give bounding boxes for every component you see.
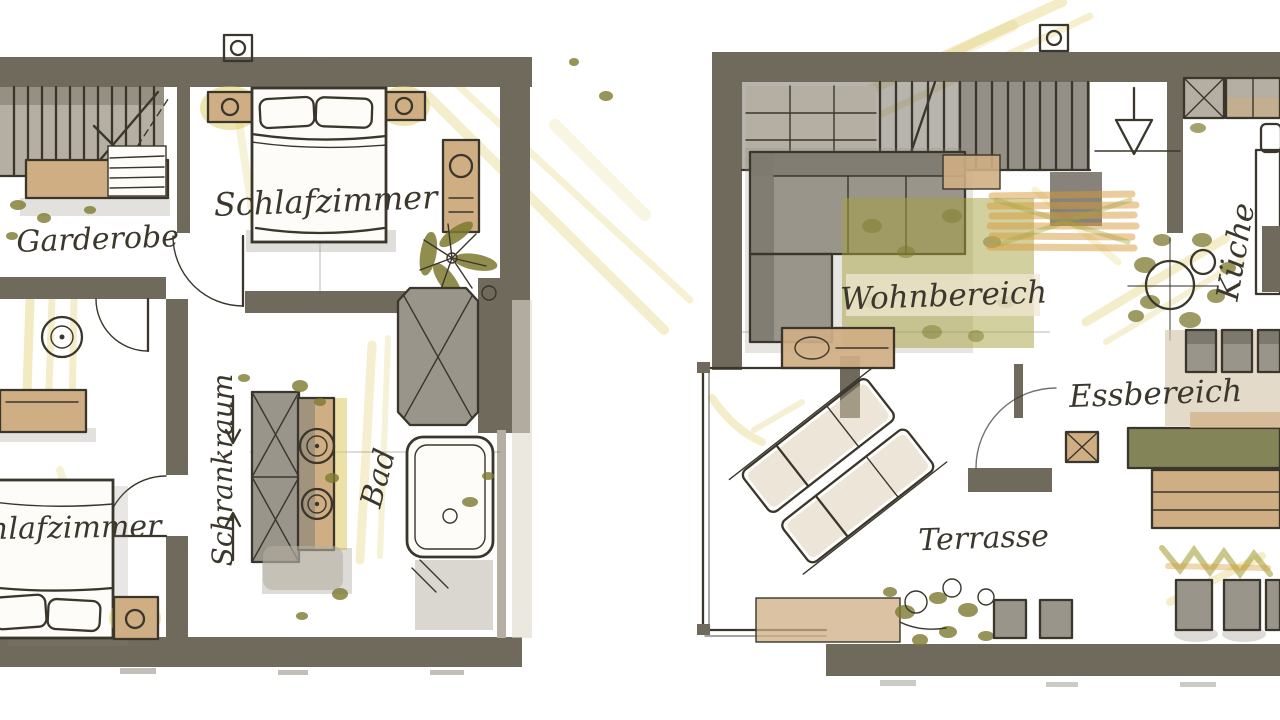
side-table [943,155,1000,189]
dining-table [1128,412,1280,642]
washstand [443,140,479,232]
rug-olive [842,198,1040,348]
coffee-table [782,328,894,368]
room-label-garderobe: Garderobe [16,219,180,260]
room-label-schrankraum: Schrankraum [206,374,239,567]
planter [1040,600,1072,638]
room-label-terrasse: Terrasse [918,519,1050,559]
planter [994,600,1026,638]
floor-plan-left: Garderobe Schlafzimmer Schrankraum Bad S… [0,35,690,675]
kitchen-sink-icon [1261,124,1280,152]
floorplan-document: Garderobe Schlafzimmer Schrankraum Bad S… [0,0,1280,720]
floor-plan-right: Wohnbereich Küche Essbereich Terrasse [697,2,1280,687]
bath-mat [263,546,343,590]
room-label-wohnbereich: Wohnbereich [840,274,1048,317]
bed-top [200,86,430,252]
room-label-bad: Bad [354,445,403,512]
room-label-schlafzimmer-bottom: Schlafzimmer [0,509,163,548]
sun-loungers [729,367,946,574]
bathtub [407,437,493,630]
room-label-essbereich: Essbereich [1068,373,1243,415]
bed-bottom [0,480,161,646]
floorplan-drawing: Garderobe Schlafzimmer Schrankraum Bad S… [0,0,1280,720]
deck-mat [756,598,900,642]
room-label-kueche: Küche [1210,200,1263,304]
room-label-schlafzimmer-top: Schlafzimmer [213,178,440,224]
dining-chairs-bottom [1174,580,1280,642]
stool-icon [1066,432,1098,462]
